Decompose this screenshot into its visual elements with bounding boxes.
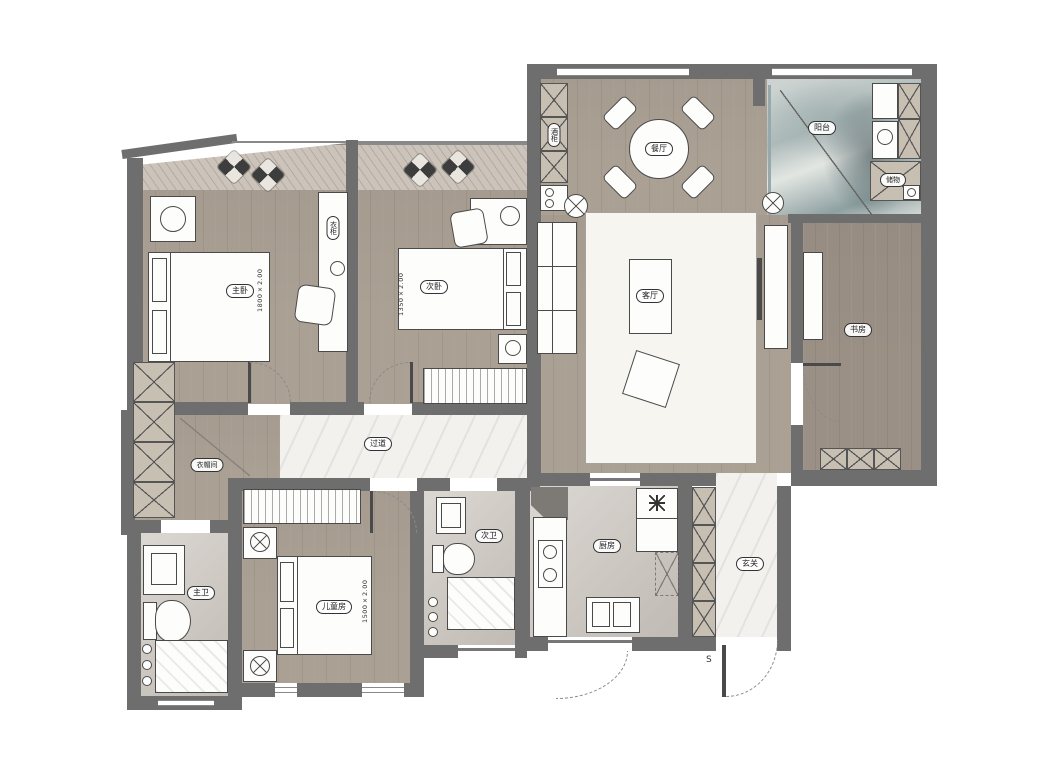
wall-entry-south-west (692, 637, 716, 651)
kitchen-upper-cabinet (655, 552, 679, 596)
wall-right-exterior (921, 64, 937, 486)
second-bed-size: 1350×2.00 (397, 254, 405, 316)
snowflake-icon (649, 495, 665, 511)
dining-cabinet (540, 151, 568, 183)
wall-hallway-south-2 (417, 478, 450, 491)
second-nightstand-lamp (505, 340, 521, 356)
sofa-cushion-line (538, 310, 576, 311)
bath1-toilet-bowl (155, 600, 191, 642)
second-pillow (506, 292, 521, 326)
wall-kitchen-north-2 (640, 473, 716, 486)
entry-door-swing (726, 640, 778, 697)
sofa (537, 222, 577, 354)
window-line-bay (232, 141, 527, 143)
bath1-basin (151, 553, 177, 585)
kids-bed-size: 1500×2.00 (361, 563, 369, 623)
kitchen-sink (592, 602, 610, 627)
hallway-label: 过道 (364, 437, 392, 451)
window-dining-top (557, 68, 689, 76)
bath2-slider-door (458, 648, 515, 651)
second-door-leaf (410, 362, 413, 403)
bath2-toilet-bowl (443, 543, 475, 575)
study-bench (847, 448, 874, 470)
dining-room-label: 餐厅 (645, 142, 673, 156)
second-pillow (506, 252, 521, 286)
wall-under-master-1 (175, 402, 248, 415)
wall-kids-south-2 (297, 683, 362, 697)
wall-under-master-2 (290, 402, 364, 415)
wall-bath2-kitchen (515, 491, 530, 645)
wardrobe-label: 衣柜 (327, 216, 340, 240)
wall-living-study-1 (791, 223, 803, 363)
balcony-cabinet (898, 83, 921, 119)
wine-cabinet-label: 酒柜 (548, 123, 561, 147)
bath2-control (428, 612, 438, 622)
bath2-control (428, 627, 438, 637)
study-bench (874, 448, 901, 470)
wall-entry-east (777, 486, 791, 651)
second-bath-label: 次卫 (475, 529, 503, 543)
bath1-control (142, 644, 152, 654)
sofa-seat-line (552, 223, 553, 353)
window-bath1-south (158, 700, 214, 706)
service-door-swing (556, 651, 628, 699)
cloak-cabinet (133, 482, 175, 518)
wall-living-study-2 (791, 425, 803, 470)
cloak-cabinet (133, 402, 175, 442)
fridge-divider (637, 518, 677, 519)
hallway-floor (280, 415, 527, 478)
kids-wardrobe (243, 489, 361, 524)
floor-plan: 1800×2.00 衣柜 主卧 1350×2.00 次卧 酒柜 餐厅 客厅 阳台 (0, 0, 1042, 757)
balcony-sink-drain (907, 188, 916, 197)
bath2-control (428, 597, 438, 607)
shoe-cabinet (692, 563, 716, 601)
master-lamp (160, 206, 186, 232)
second-wardrobe (423, 368, 527, 404)
wall-kids-south-corner (404, 683, 424, 697)
bath1-shower (155, 640, 228, 693)
shoe-cabinet (692, 601, 716, 637)
entry-floor (716, 473, 777, 637)
entry-label: 玄关 (736, 557, 764, 571)
second-desk-chair (449, 207, 489, 248)
master-chair (294, 284, 337, 327)
second-desk-lamp (500, 206, 520, 226)
plant-pot-icon (762, 192, 784, 214)
wall-kitchen-south-2 (632, 637, 692, 651)
master-pillow (152, 258, 167, 302)
washing-machine-drum (877, 129, 893, 145)
wall-cloak-bath1-divider (210, 520, 242, 533)
sofa-cushion-line (538, 266, 576, 267)
wall-bath2-south-2 (515, 645, 527, 658)
kitchen-slider-door (590, 478, 640, 481)
kids-pillow (280, 562, 294, 602)
balcony-folding-door (780, 90, 872, 215)
shoe-cabinet (692, 487, 716, 525)
cloak-cabinet (133, 362, 175, 402)
master-wardrobe-knob (330, 261, 345, 276)
master-pillow (152, 310, 167, 354)
dining-cabinet (540, 83, 568, 117)
kids-bed-headline (297, 557, 298, 654)
master-bedroom-label: 主卧 (226, 284, 254, 298)
wall-kids-south-1 (242, 683, 275, 697)
balcony-cabinet (898, 119, 921, 159)
kids-bedroom-label: 儿童房 (316, 600, 352, 614)
wall-top-left-slant (121, 134, 237, 159)
tv-cabinet (764, 225, 788, 349)
wall-stub-dining-balcony (753, 64, 765, 106)
wall-cloak-step (121, 520, 161, 533)
entry-door-mark: S (706, 655, 712, 665)
kids-lamp (250, 532, 270, 552)
study-bench (820, 448, 847, 470)
kids-lamp (250, 656, 270, 676)
burner (543, 568, 557, 582)
wall-study-south (791, 470, 937, 486)
kitchen-sink (613, 602, 631, 627)
tv-screen (757, 258, 762, 320)
window-kids-south-1 (275, 687, 297, 693)
shoe-cabinet (692, 525, 716, 563)
wall-left-lower (127, 531, 141, 710)
bath1-control (142, 660, 152, 670)
kitchen-label: 厨房 (593, 539, 621, 553)
wall-kitchen-north-1 (527, 473, 590, 486)
burner (543, 545, 557, 559)
master-bath-label: 主卫 (187, 586, 215, 600)
study-label: 书房 (844, 323, 872, 337)
master-bed-size: 1800×2.00 (256, 250, 264, 312)
wall-kitchen-south-1 (527, 637, 548, 651)
balcony-cabinet (872, 83, 898, 119)
second-bed-headline (503, 249, 504, 329)
window-balcony-top (772, 68, 912, 76)
dining-cabinet-knob (545, 199, 554, 208)
study-desk (803, 252, 823, 340)
bath2-shower (447, 577, 515, 630)
living-room-label: 客厅 (636, 289, 664, 303)
cloak-door-swing (180, 418, 250, 476)
kitchen-south-slider (548, 640, 632, 643)
wall-kitchen-entry (678, 486, 692, 637)
cloak-cabinet (133, 442, 175, 482)
wall-balcony-study (788, 214, 921, 223)
kids-pillow (280, 608, 294, 648)
bath1-control (142, 676, 152, 686)
second-bedroom-label: 次卧 (420, 280, 448, 294)
dining-cabinet-knob (545, 188, 554, 197)
master-bed-headline (170, 253, 171, 361)
bath2-basin (441, 503, 461, 528)
balcony-label: 阳台 (808, 121, 836, 135)
living-rug (585, 212, 757, 464)
window-kids-south-2 (362, 687, 410, 693)
